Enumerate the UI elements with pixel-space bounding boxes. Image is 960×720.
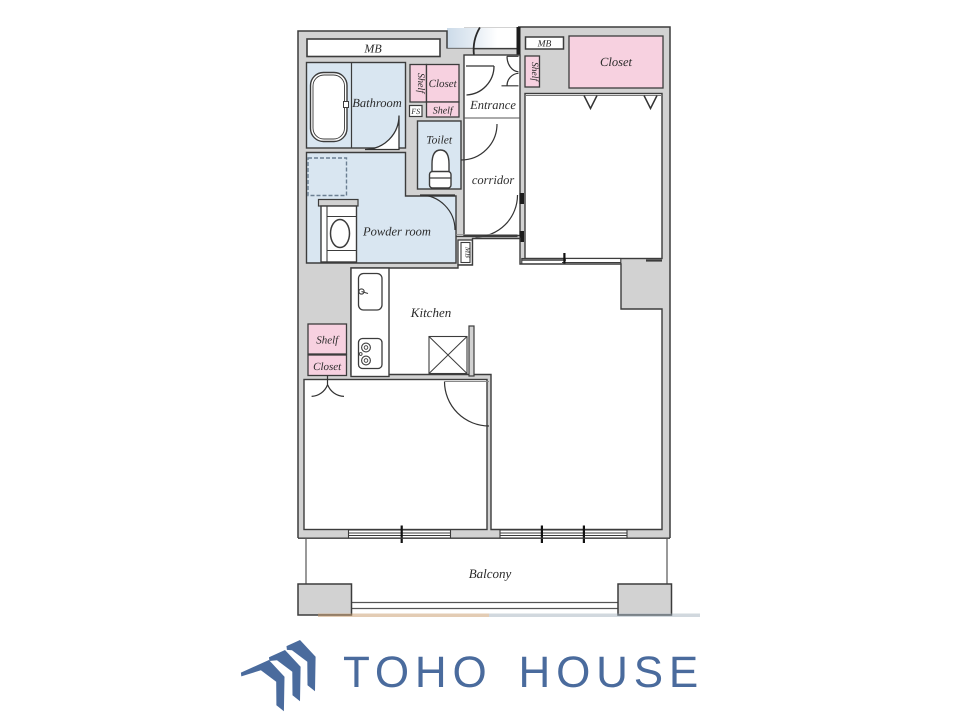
svg-text:Closet: Closet [600,55,632,69]
svg-text:MB: MB [537,40,552,50]
svg-text:Powder room: Powder room [362,225,431,239]
svg-text:MB: MB [363,42,382,56]
svg-text:Kitchen: Kitchen [410,305,451,320]
svg-text:Entrance: Entrance [469,98,516,112]
svg-text:Toilet: Toilet [426,135,453,147]
svg-text:Shelf: Shelf [433,106,454,117]
svg-text:Closet: Closet [313,361,342,373]
svg-text:Balcony: Balcony [469,566,512,581]
svg-text:Closet: Closet [429,78,458,90]
svg-text:MB: MB [464,246,473,258]
svg-text:Bathroom: Bathroom [352,96,402,110]
svg-text:Shelf: Shelf [529,62,539,82]
svg-text:corridor: corridor [472,173,515,187]
svg-text:Shelf: Shelf [316,335,340,347]
svg-text:FS: FS [410,107,420,116]
svg-text:TOHO HOUSE: TOHO HOUSE [343,648,704,697]
svg-text:Shelf: Shelf [415,73,426,94]
